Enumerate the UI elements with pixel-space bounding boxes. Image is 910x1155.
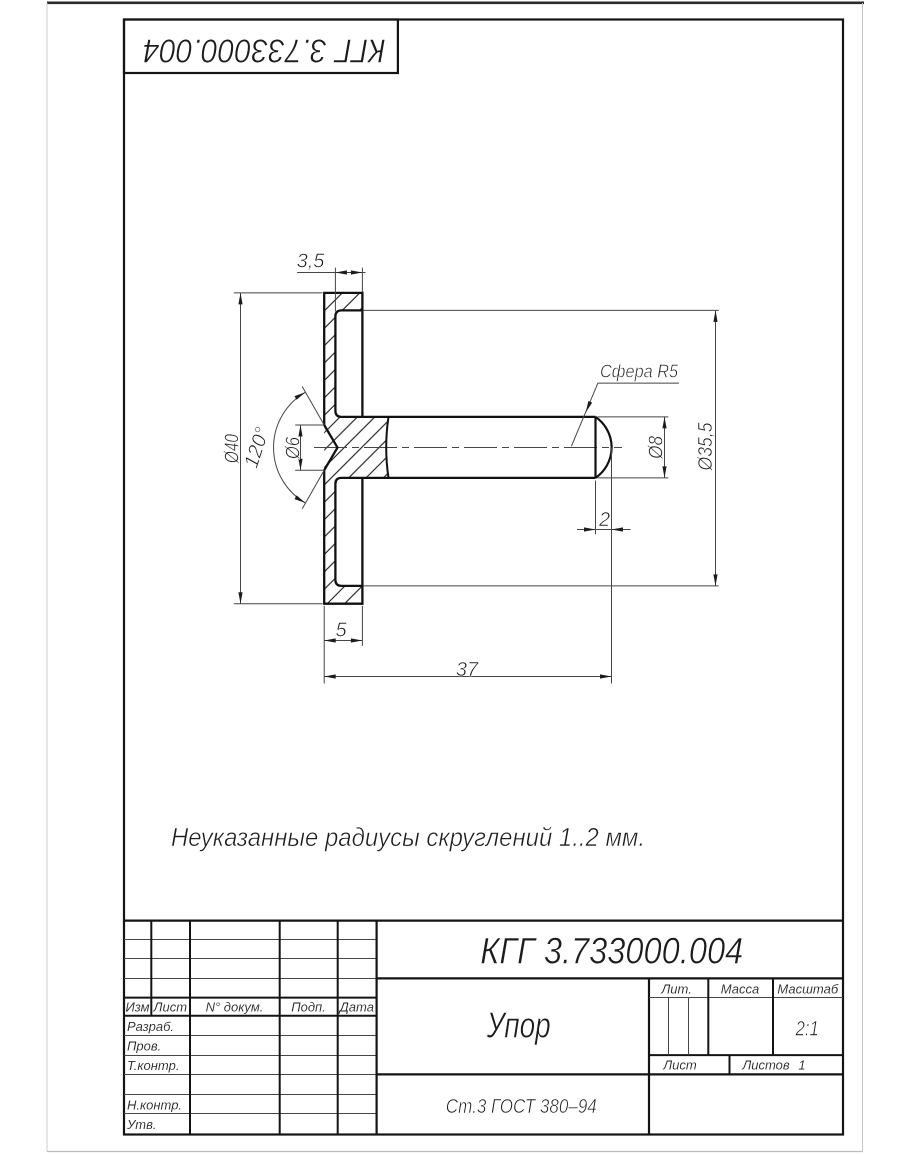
svg-text:Листов: Листов bbox=[741, 1057, 790, 1072]
svg-text:120°: 120° bbox=[240, 425, 274, 471]
svg-text:Неуказанные радиусы скруглен: Неуказанные радиусы скруглений 1..2 мм. bbox=[171, 822, 645, 852]
svg-text:Лист: Лист bbox=[153, 999, 188, 1014]
svg-text:Ст.3 ГОСТ 380–94: Ст.3 ГОСТ 380–94 bbox=[446, 1096, 597, 1118]
svg-text:N° докум.: N° докум. bbox=[206, 999, 264, 1014]
svg-text:1: 1 bbox=[798, 1057, 805, 1072]
svg-text:КГГ 3.733000.004: КГГ 3.733000.004 bbox=[143, 32, 386, 69]
svg-text:Разраб.: Разраб. bbox=[127, 1019, 174, 1034]
svg-text:Упор: Упор bbox=[486, 1005, 551, 1046]
svg-text:Лит.: Лит. bbox=[660, 982, 691, 997]
svg-text:5: 5 bbox=[335, 620, 347, 642]
svg-text:Утв.: Утв. bbox=[126, 1117, 157, 1132]
svg-text:Ø6: Ø6 bbox=[282, 436, 304, 460]
svg-text:3,5: 3,5 bbox=[297, 250, 326, 272]
svg-text:Т.контр.: Т.контр. bbox=[127, 1058, 179, 1073]
svg-text:Ø40: Ø40 bbox=[222, 434, 244, 464]
svg-text:КГГ 3.733000.004: КГГ 3.733000.004 bbox=[480, 931, 743, 972]
svg-text:2: 2 bbox=[598, 509, 610, 531]
svg-text:Масса: Масса bbox=[721, 982, 759, 997]
svg-text:Дата: Дата bbox=[338, 999, 374, 1014]
svg-text:Ø8: Ø8 bbox=[646, 436, 668, 460]
svg-text:Пров.: Пров. bbox=[127, 1038, 161, 1053]
svg-text:Подп.: Подп. bbox=[291, 999, 326, 1014]
svg-text:Ø35,5: Ø35,5 bbox=[695, 422, 717, 472]
svg-text:Сфера R5: Сфера R5 bbox=[600, 362, 679, 382]
svg-text:2:1: 2:1 bbox=[795, 1017, 819, 1040]
svg-text:Лист: Лист bbox=[662, 1057, 697, 1072]
svg-text:Масштаб: Масштаб bbox=[777, 982, 838, 997]
svg-text:Н.контр.: Н.контр. bbox=[127, 1097, 182, 1112]
svg-text:37: 37 bbox=[456, 659, 479, 681]
svg-text:Изм: Изм bbox=[125, 999, 149, 1014]
